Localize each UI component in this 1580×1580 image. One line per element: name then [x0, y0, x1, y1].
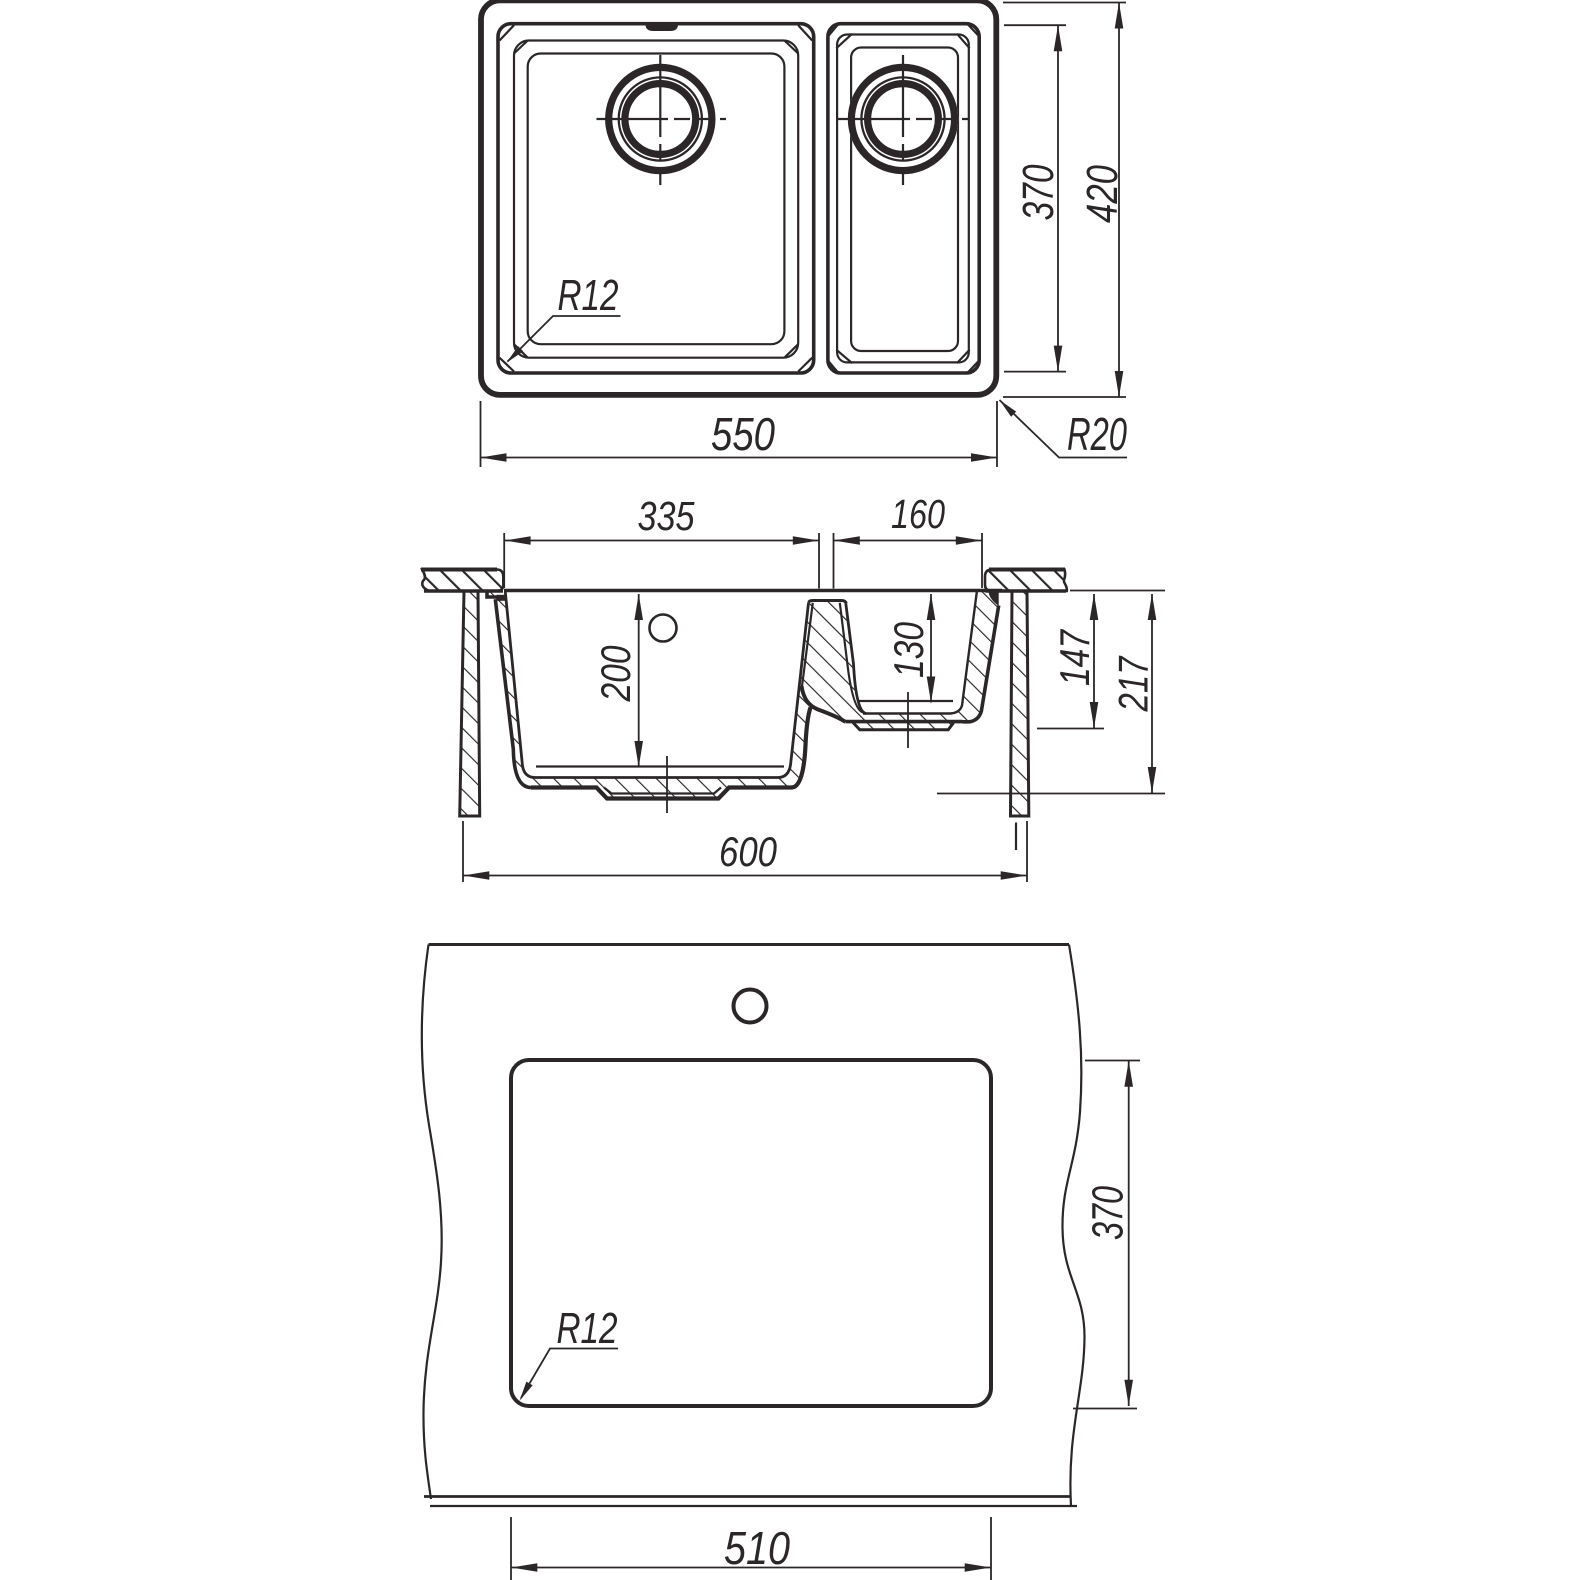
svg-text:R12: R12 [557, 1304, 618, 1353]
svg-text:510: 510 [724, 1522, 790, 1574]
svg-text:147: 147 [1051, 629, 1098, 686]
svg-text:600: 600 [719, 828, 778, 875]
svg-text:370: 370 [1084, 1186, 1133, 1240]
svg-text:335: 335 [638, 493, 695, 539]
svg-text:550: 550 [711, 408, 775, 460]
svg-text:370: 370 [1014, 164, 1063, 220]
svg-text:130: 130 [885, 621, 932, 678]
svg-text:200: 200 [592, 645, 639, 702]
svg-text:R12: R12 [558, 271, 619, 320]
svg-text:217: 217 [1110, 655, 1157, 712]
svg-text:160: 160 [891, 491, 945, 537]
svg-text:420: 420 [1078, 165, 1127, 223]
svg-text:R20: R20 [1067, 408, 1127, 460]
